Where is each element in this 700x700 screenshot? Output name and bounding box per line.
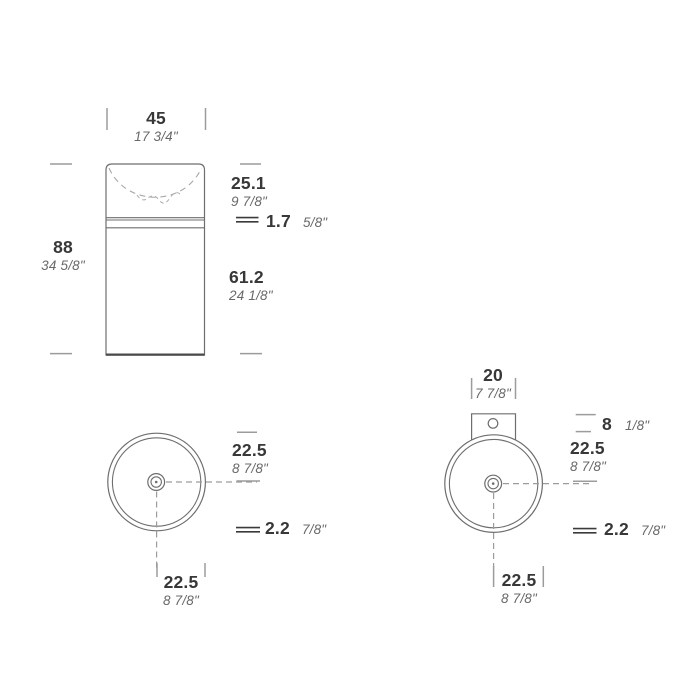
- dim-front-height: 88 34 5/8": [22, 238, 104, 273]
- dim-value-imperial: 5/8": [303, 215, 327, 230]
- dim-value-imperial: 1/8": [625, 418, 649, 433]
- rim-thickness-symbol: [236, 218, 259, 222]
- dim-value-metric: 8: [602, 414, 612, 435]
- wall-thickness-symbol-right: [573, 529, 597, 533]
- drain-center-dot: [155, 481, 158, 484]
- dimension-drawing-canvas: 45 17 3/4" 88 34 5/8" 25.1 9 7/8" 1.7 5/…: [0, 0, 700, 700]
- drawing-linework: [0, 0, 700, 700]
- front-view: [106, 164, 205, 355]
- dim-left-wall-thickness: 2.2 7/8": [265, 518, 326, 539]
- dim-value-metric: 25.1: [231, 174, 267, 193]
- tap-hole-circle: [488, 419, 498, 429]
- dim-value-metric: 88: [22, 238, 104, 257]
- dim-right-wall-thickness: 2.2 7/8": [604, 519, 665, 540]
- dim-value-imperial: 8 7/8": [469, 592, 569, 607]
- dim-front-width: 45 17 3/4": [106, 109, 206, 144]
- dim-right-plate-width: 20 7 7/8": [443, 366, 543, 401]
- dim-front-body-height: 61.2 24 1/8": [229, 268, 273, 303]
- wall-thickness-symbol-left: [236, 528, 260, 532]
- dim-right-radius-vertical: 22.5 8 7/8": [469, 571, 569, 606]
- dim-value-imperial: 9 7/8": [231, 195, 267, 210]
- dim-left-radius-horizontal: 22.5 8 7/8": [232, 441, 268, 476]
- dim-value-metric: 22.5: [469, 571, 569, 590]
- dim-value-metric: 22.5: [131, 573, 231, 592]
- front-view-outline: [106, 164, 205, 355]
- dim-value-imperial: 34 5/8": [22, 259, 104, 274]
- dim-value-imperial: 7/8": [641, 523, 665, 538]
- dim-value-metric: 20: [443, 366, 543, 385]
- drain-center-dot: [492, 482, 495, 485]
- dim-right-radius-horizontal: 22.5 8 7/8": [570, 439, 606, 474]
- dim-value-metric: 22.5: [232, 441, 268, 460]
- dim-value-metric: 22.5: [570, 439, 606, 458]
- dim-value-metric: 45: [106, 109, 206, 128]
- dim-left-radius-vertical: 22.5 8 7/8": [131, 573, 231, 608]
- dim-value-imperial: 17 3/4": [106, 130, 206, 145]
- dim-value-metric: 2.2: [604, 519, 629, 540]
- dim-value-imperial: 24 1/8": [229, 289, 273, 304]
- dim-value-imperial: 7/8": [302, 522, 326, 537]
- dim-value-metric: 2.2: [265, 518, 290, 539]
- dim-front-rim-thickness: 1.7 5/8": [266, 211, 327, 232]
- dim-value-metric: 1.7: [266, 211, 291, 232]
- dim-value-imperial: 7 7/8": [443, 387, 543, 402]
- dim-right-plate-offset: 8 1/8": [602, 414, 649, 435]
- dim-front-basin-depth: 25.1 9 7/8": [231, 174, 267, 209]
- dim-value-imperial: 8 7/8": [232, 462, 268, 477]
- dim-value-metric: 61.2: [229, 268, 273, 287]
- dim-value-imperial: 8 7/8": [131, 594, 231, 609]
- dim-value-imperial: 8 7/8": [570, 460, 606, 475]
